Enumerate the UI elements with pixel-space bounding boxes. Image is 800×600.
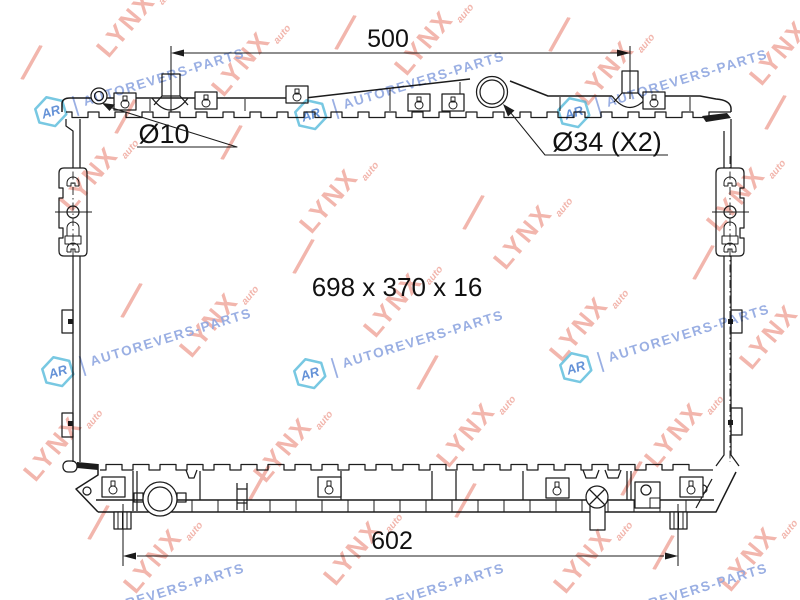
small-hole-grommet: [91, 88, 107, 104]
top-right-end-cap: [702, 113, 731, 122]
dim-overall-label: 698 x 370 x 16: [312, 272, 483, 302]
left-side-channel: [55, 119, 92, 462]
bottom-clip-boss: [318, 477, 341, 497]
top-clip-boss: [643, 92, 665, 109]
mounting-pin-left: [152, 74, 188, 110]
top-tank-outline-mid: [510, 81, 612, 96]
bottom-clip-boss: [102, 477, 125, 497]
dim-bottom-width-label: 602: [371, 527, 413, 555]
top-tank-crimp-edge: [66, 112, 731, 118]
top-clip-boss: [286, 86, 308, 103]
bottom-clip-boss: [680, 477, 703, 497]
bottom-ladder-detail: [237, 483, 247, 510]
bottom-left-chamfer: [76, 464, 98, 512]
top-clip-boss: [408, 94, 430, 111]
bottom-tank-crimp-edge: [100, 465, 713, 471]
left-channel-tab: [62, 413, 73, 437]
filler-neck-hole: [477, 77, 508, 108]
bottom-left-end-cap: [77, 462, 98, 470]
top-clip-boss: [442, 94, 464, 111]
dim-top-width: 500: [171, 25, 630, 112]
top-clip-boss: [114, 93, 136, 110]
outlet-pipe: [134, 482, 186, 516]
dim-top-width-label: 500: [367, 25, 409, 53]
drain-plug: [586, 486, 608, 530]
bottom-left-nub: [63, 461, 77, 472]
dim-small-hole-label: Ø10: [138, 119, 189, 149]
bottom-crimp-ribs: [192, 500, 686, 512]
dim-large-hole-label: Ø34 (X2): [552, 127, 662, 157]
bottom-clip-boss: [546, 478, 569, 498]
right-side-channel: [712, 119, 749, 466]
bottom-hanging-tabs: [186, 470, 621, 478]
sensor-boss: [635, 482, 660, 508]
bottom-tank: [63, 461, 736, 530]
radiator-line-drawing: 500 Ø10 Ø34 (X2) 698 x 370 x 16 602: [0, 0, 800, 600]
top-tank: [62, 71, 731, 122]
left-channel-tab: [62, 310, 73, 333]
top-clip-boss: [195, 92, 217, 109]
radiator-diagram-canvas: 500 Ø10 Ø34 (X2) 698 x 370 x 16 602 LYNX…: [0, 0, 800, 600]
